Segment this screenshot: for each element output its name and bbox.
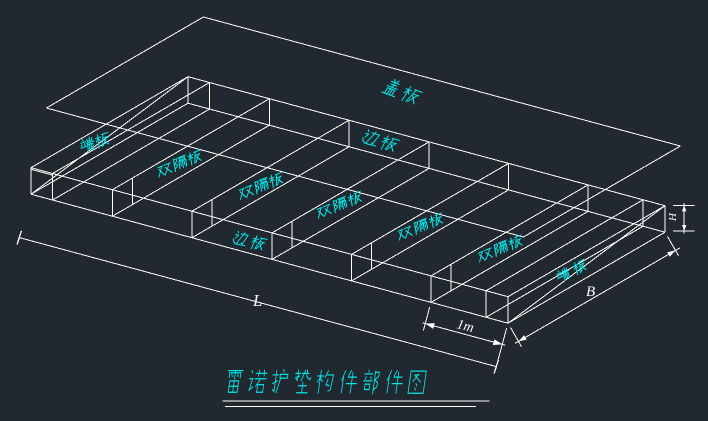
svg-text:H: H — [667, 212, 679, 222]
svg-text:L: L — [252, 291, 262, 310]
svg-text:B: B — [586, 284, 595, 300]
